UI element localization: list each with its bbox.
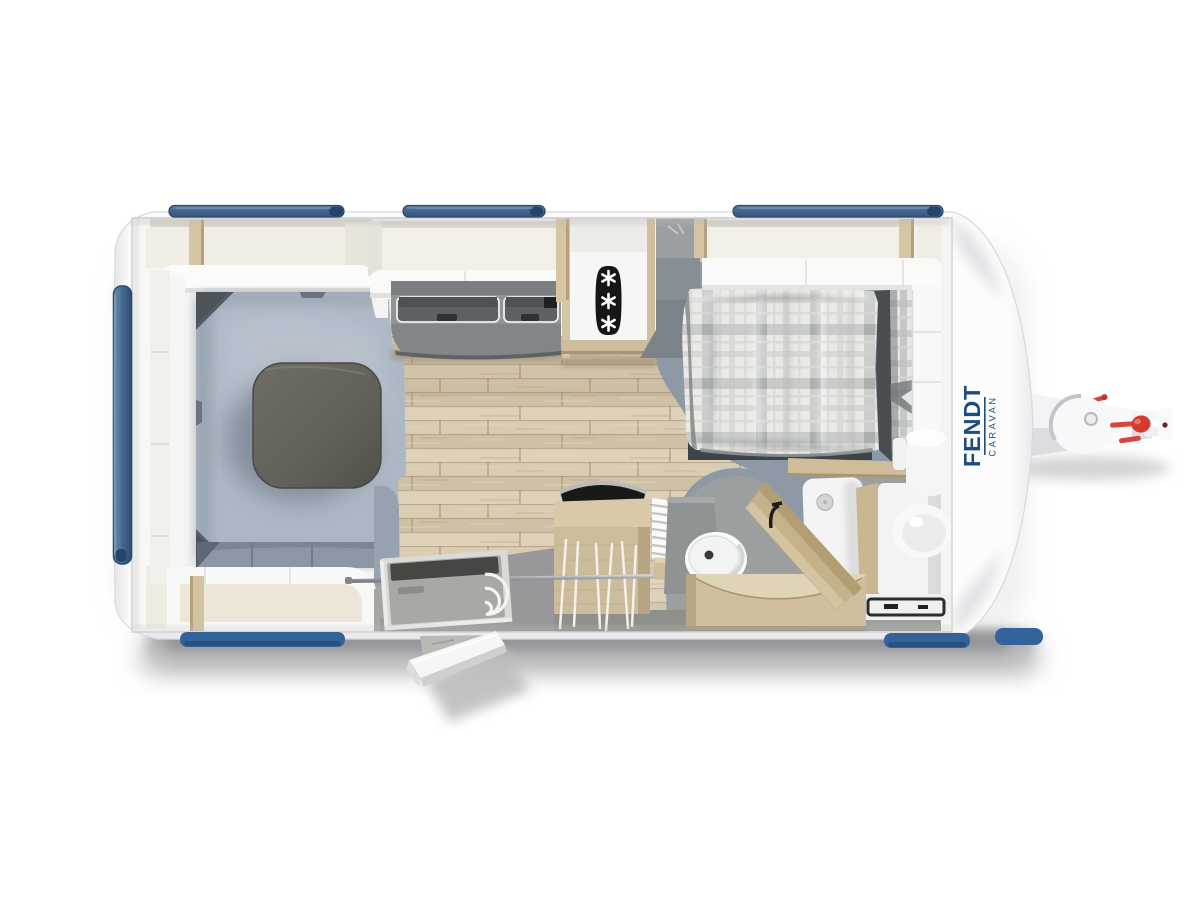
svg-text:FENDT: FENDT: [959, 385, 985, 467]
svg-text:CARAVAN: CARAVAN: [988, 395, 998, 456]
